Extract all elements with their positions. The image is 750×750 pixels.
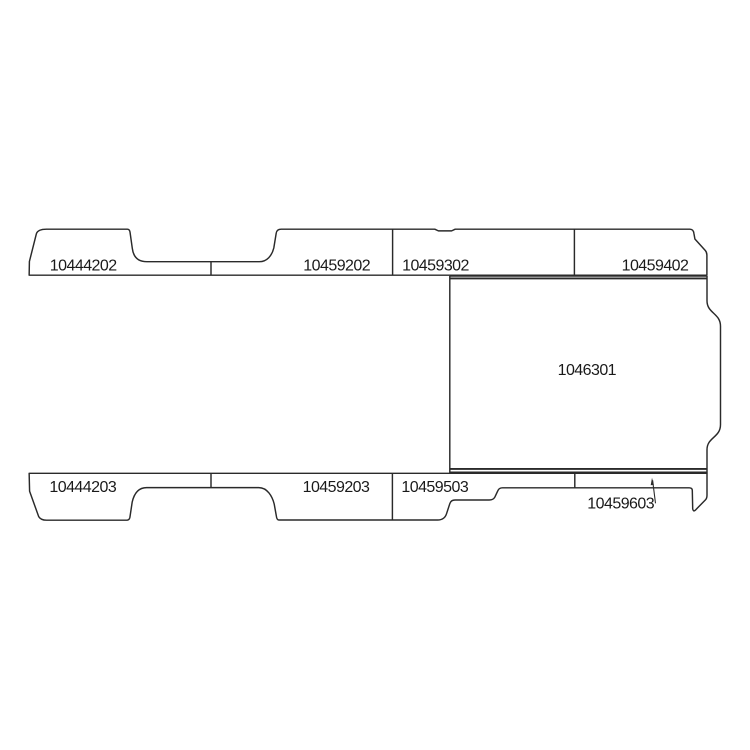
svg-text:10459402: 10459402 (622, 257, 689, 274)
svg-text:1046301: 1046301 (558, 362, 617, 379)
svg-text:10444202: 10444202 (50, 257, 117, 274)
svg-text:10459603: 10459603 (587, 496, 654, 513)
svg-text:10459203: 10459203 (303, 479, 370, 496)
svg-text:10459302: 10459302 (402, 257, 469, 274)
svg-text:10459202: 10459202 (303, 257, 370, 274)
svg-text:10459503: 10459503 (401, 479, 468, 496)
svg-text:10444203: 10444203 (49, 479, 116, 496)
